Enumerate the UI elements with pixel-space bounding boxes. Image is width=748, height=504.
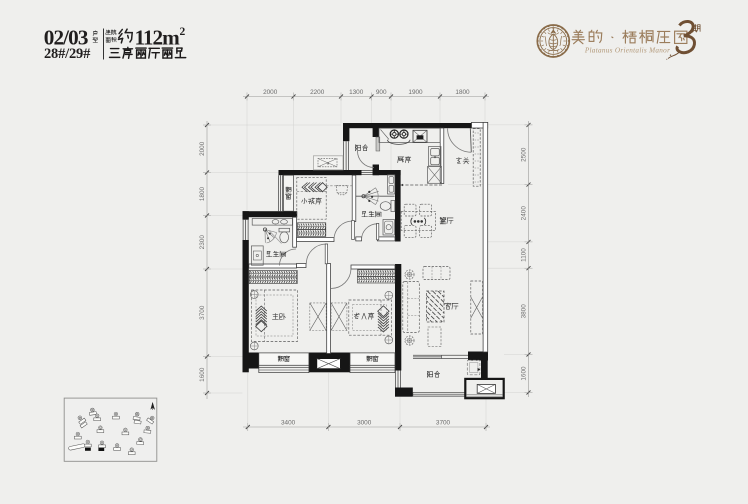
svg-text:Platanus Orientalis Manor: Platanus Orientalis Manor bbox=[584, 47, 670, 55]
svg-text:1100: 1100 bbox=[521, 248, 528, 262]
svg-text:2400: 2400 bbox=[521, 206, 528, 221]
svg-text:112m: 112m bbox=[135, 26, 181, 50]
svg-text:3000: 3000 bbox=[357, 419, 372, 426]
svg-text:2300: 2300 bbox=[199, 235, 206, 250]
svg-text:28#/29#: 28#/29# bbox=[44, 46, 91, 62]
svg-text:3800: 3800 bbox=[521, 304, 528, 319]
svg-text:2000: 2000 bbox=[199, 141, 206, 156]
svg-text:3700: 3700 bbox=[436, 419, 451, 426]
svg-text:1600: 1600 bbox=[521, 366, 528, 381]
svg-text:2000: 2000 bbox=[263, 89, 278, 96]
svg-text:1800: 1800 bbox=[199, 186, 206, 201]
svg-text:1800: 1800 bbox=[455, 89, 470, 96]
svg-text:1600: 1600 bbox=[199, 367, 206, 382]
svg-text:3400: 3400 bbox=[281, 419, 296, 426]
svg-text:1300: 1300 bbox=[349, 89, 364, 96]
svg-text:2: 2 bbox=[180, 26, 186, 38]
svg-text:3700: 3700 bbox=[199, 305, 206, 320]
svg-text:2200: 2200 bbox=[310, 89, 325, 96]
svg-text:2500: 2500 bbox=[521, 147, 528, 162]
svg-text:1900: 1900 bbox=[408, 89, 423, 96]
svg-text:«: « bbox=[327, 161, 330, 167]
svg-text:900: 900 bbox=[376, 89, 387, 96]
